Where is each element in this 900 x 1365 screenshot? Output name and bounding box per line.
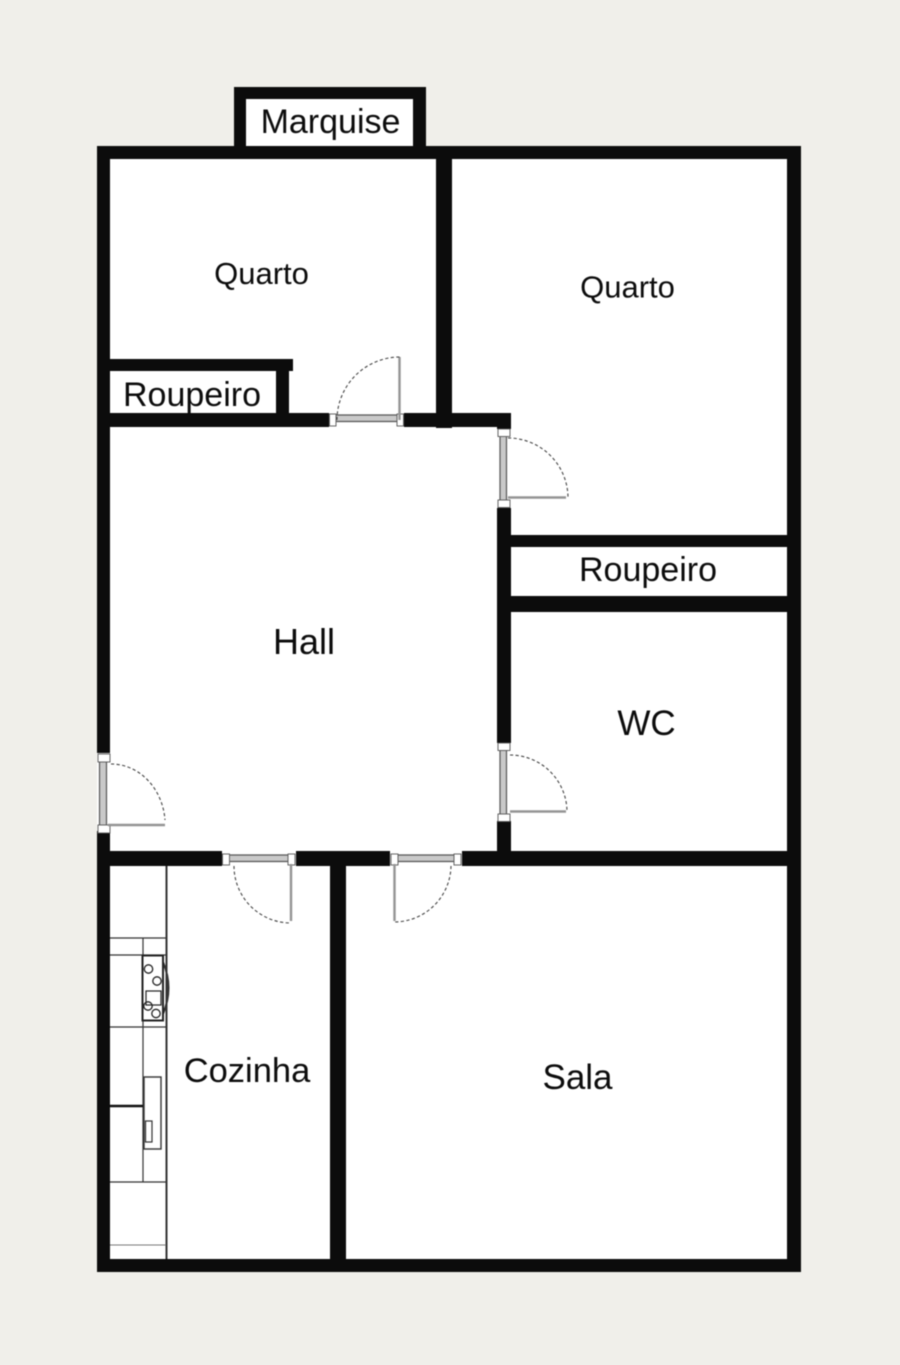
- svg-text:Marquise: Marquise: [261, 103, 401, 141]
- svg-text:Sala: Sala: [542, 1058, 613, 1097]
- svg-text:Cozinha: Cozinha: [184, 1052, 311, 1090]
- svg-text:Quarto: Quarto: [214, 256, 309, 291]
- svg-text:Quarto: Quarto: [580, 270, 675, 305]
- svg-text:Hall: Hall: [273, 621, 335, 662]
- svg-text:Roupeiro: Roupeiro: [123, 376, 261, 414]
- svg-text:WC: WC: [617, 704, 675, 743]
- svg-text:Roupeiro: Roupeiro: [579, 551, 717, 589]
